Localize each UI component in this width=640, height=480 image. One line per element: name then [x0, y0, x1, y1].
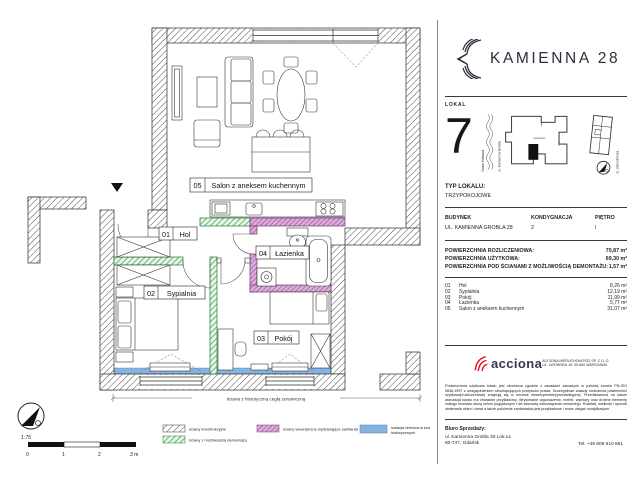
room-door — [221, 260, 245, 284]
divider — [445, 207, 627, 208]
svg-text:04: 04 — [259, 249, 267, 258]
area-label: POWIERZCHNIA ROZLICZENIOWA: — [445, 247, 534, 255]
legal-disclaimer: Powierzchnia użytkowa lokalu jest określ… — [445, 384, 627, 412]
info-panel: KAMIENNA 28 LOKAL 7 Nowa Motława ul. Kam… — [437, 20, 627, 464]
brand-name: KAMIENNA 28 — [490, 50, 620, 68]
type-label: TYP LOKALU: — [445, 184, 627, 190]
scale-bar: 1:75 0 1 2 3 m — [21, 435, 138, 458]
svg-text:Salon z aneksem kuchennym: Salon z aneksem kuchennym — [212, 181, 306, 190]
kamienna-logo-icon — [453, 39, 483, 79]
svg-text:Pokój: Pokój — [275, 334, 293, 343]
nightstand — [116, 352, 133, 362]
floor-label: PIĘTRO — [595, 215, 627, 221]
storey-value: 2 — [531, 225, 595, 231]
building-info: BUDYNEK KONDYGNACJA PIĘTRO UL. KAMIENNA … — [445, 215, 627, 231]
legend-swatch-sanitary — [257, 425, 279, 432]
sales-address-line2: 80-747, Gdańsk — [445, 441, 511, 447]
desk — [218, 329, 246, 370]
dining-table — [277, 69, 305, 121]
street-label-side: ul. Jałmużnicza — [615, 151, 619, 174]
type-value: TRZYPOKOJOWE — [445, 193, 627, 199]
legend-swatch-insulation — [360, 425, 387, 433]
legend-swatch-demountable — [163, 436, 185, 443]
salon-window — [253, 29, 378, 68]
bathroom-door — [233, 234, 253, 254]
pouf — [194, 120, 220, 147]
room-label-sypialnia: 02 Sypialnia — [144, 286, 205, 299]
area-label: POWIERZCHNIA POD ŚCIANAMI Z MOŻLIWOŚCIĄ … — [445, 263, 608, 271]
apartment-card: 05 Salon z aneksem kuchennym 01 Hol 02 S… — [0, 0, 640, 480]
building-value: UL. KAMIENNA GROBLA 28 — [445, 225, 531, 231]
svg-text:ściana z historyczną cegłą cer: ściana z historyczną cegłą ceramiczną — [227, 397, 306, 402]
room-label-salon: 05 Salon z aneksem kuchennym — [190, 178, 312, 192]
area-summary: POWIERZCHNIA ROZLICZENIOWA: 70,87 m² POW… — [445, 247, 627, 271]
sales-address-line1: ul. Kamienna Grobla 30 Lok.u1 — [445, 435, 511, 441]
room-area: 31,07 m² — [607, 307, 627, 313]
sales-office-address: ul. Kamienna Grobla 30 Lok.u1 80-747, Gd… — [445, 435, 511, 447]
area-label: POWIERZCHNIA UŻYTKOWA: — [445, 255, 520, 263]
room-label-lazienka: 04 Łazienka — [256, 246, 309, 259]
legend-swatch-structural — [163, 425, 185, 432]
sales-office-phone: Tel. +48 609 610 851 — [578, 442, 627, 447]
river-motlawa: Nowa Motława — [481, 114, 493, 171]
coffee-table — [197, 77, 217, 107]
bedroom-door — [183, 261, 210, 288]
building-label: BUDYNEK — [445, 215, 531, 221]
floor-value: I — [595, 225, 627, 231]
building-side-view — [590, 115, 613, 154]
desk-chair — [235, 342, 246, 356]
svg-text:02: 02 — [147, 289, 155, 298]
sideboard — [251, 364, 268, 370]
brand-logo: KAMIENNA 28 — [453, 36, 627, 82]
single-bed — [270, 292, 329, 324]
room-table: 01 Hol 8,26 m² 02 Sypialnia 12,19 m² 03 … — [445, 284, 627, 313]
unit-number: 7 — [445, 110, 473, 182]
svg-text:1:75: 1:75 — [21, 435, 31, 441]
street-label-main: ul. Kamienna Grobla — [498, 141, 502, 172]
kitchen-counter — [210, 200, 345, 217]
svg-text:ściany konstrukcyjne: ściany konstrukcyjne — [189, 427, 227, 432]
nightstand — [116, 287, 133, 297]
svg-text:05: 05 — [194, 181, 202, 190]
area-row: POWIERZCHNIA ROZLICZENIOWA: 70,87 m² — [445, 247, 627, 255]
north-arrow-icon — [18, 403, 44, 429]
svg-text:ściany z możliwością demontażu: ściany z możliwością demontażu — [189, 438, 247, 443]
acciona-logo-icon — [473, 355, 488, 372]
washing-machine — [257, 268, 276, 286]
sales-office-label: Biuro Sprzedaży: — [445, 426, 511, 432]
room-label-hol: 01 Hol — [159, 227, 197, 240]
minimap-north-icon — [597, 161, 610, 174]
salon-furniture — [172, 57, 345, 217]
svg-text:01: 01 — [162, 230, 170, 239]
divider — [445, 345, 627, 346]
room-label-pokoj: 03 Pokój — [254, 331, 299, 344]
wardrobe — [311, 334, 330, 368]
svg-text:3 m: 3 m — [130, 452, 138, 458]
plan-legend: ściany konstrukcyjne ściany z możliwości… — [163, 425, 430, 443]
site-minimap: Nowa Motława ul. Kamienna Grobla ul. Jał… — [479, 110, 627, 180]
svg-text:03: 03 — [257, 334, 265, 343]
developer-address: ACCIONA NIERUCHOMOŚCI SP. Z O. O. UL. LW… — [542, 359, 627, 369]
table-row: 05 Salon z aneksem kuchennym 31,07 m² — [445, 307, 627, 313]
room-no: 05 — [445, 307, 459, 313]
area-row: POWIERZCHNIA POD ŚCIANAMI Z MOŻLIWOŚCIĄ … — [445, 263, 627, 271]
acciona-wordmark: acciona — [491, 356, 542, 371]
entrance-arrow — [111, 183, 123, 192]
unit-location-marker — [528, 144, 538, 160]
svg-text:Nowa Motława: Nowa Motława — [481, 150, 485, 172]
divider — [445, 96, 627, 97]
building-outline — [505, 116, 566, 163]
area-value: 1,57 m² — [609, 263, 627, 271]
storey-label: KONDYGNACJA — [531, 215, 595, 221]
bathtub — [306, 236, 331, 286]
kitchen-island — [252, 130, 310, 172]
area-value: 70,87 m² — [606, 247, 627, 255]
divider — [445, 419, 627, 420]
divider — [445, 240, 627, 241]
svg-text:0: 0 — [26, 452, 29, 458]
svg-text:2: 2 — [98, 452, 101, 458]
area-value: 69,30 m² — [606, 255, 627, 263]
acciona-logo: acciona — [473, 355, 542, 372]
svg-text:ściany wewnętrzne wydzielające: ściany wewnętrzne wydzielające sanitaria… — [283, 427, 359, 432]
balcony-door-swing — [333, 43, 378, 67]
room-name: Salon z aneksem kuchennym — [459, 307, 607, 313]
svg-text:Hol: Hol — [180, 230, 191, 239]
developer-street: UL. LWOWSKA 19, 00-660 WARSZAWA — [542, 363, 627, 368]
sales-office-block: Biuro Sprzedaży: ul. Kamienna Grobla 30 … — [445, 426, 627, 447]
svg-text:historycznych: historycznych — [391, 430, 415, 435]
svg-text:1: 1 — [62, 452, 65, 458]
developer-block: acciona ACCIONA NIERUCHOMOŚCI SP. Z O. O… — [445, 355, 627, 372]
floor-plan: 05 Salon z aneksem kuchennym 01 Hol 02 S… — [0, 0, 430, 470]
double-bed — [116, 298, 178, 350]
dimension-note: ściana z historyczną cegłą ceramiczną — [111, 394, 422, 402]
divider — [445, 277, 627, 278]
svg-text:Sypialnia: Sypialnia — [167, 289, 196, 298]
svg-text:Łazienka: Łazienka — [275, 249, 304, 258]
sofa — [225, 57, 253, 127]
radiator — [172, 66, 182, 120]
area-row: POWIERZCHNIA UŻYTKOWA: 69,30 m² — [445, 255, 627, 263]
